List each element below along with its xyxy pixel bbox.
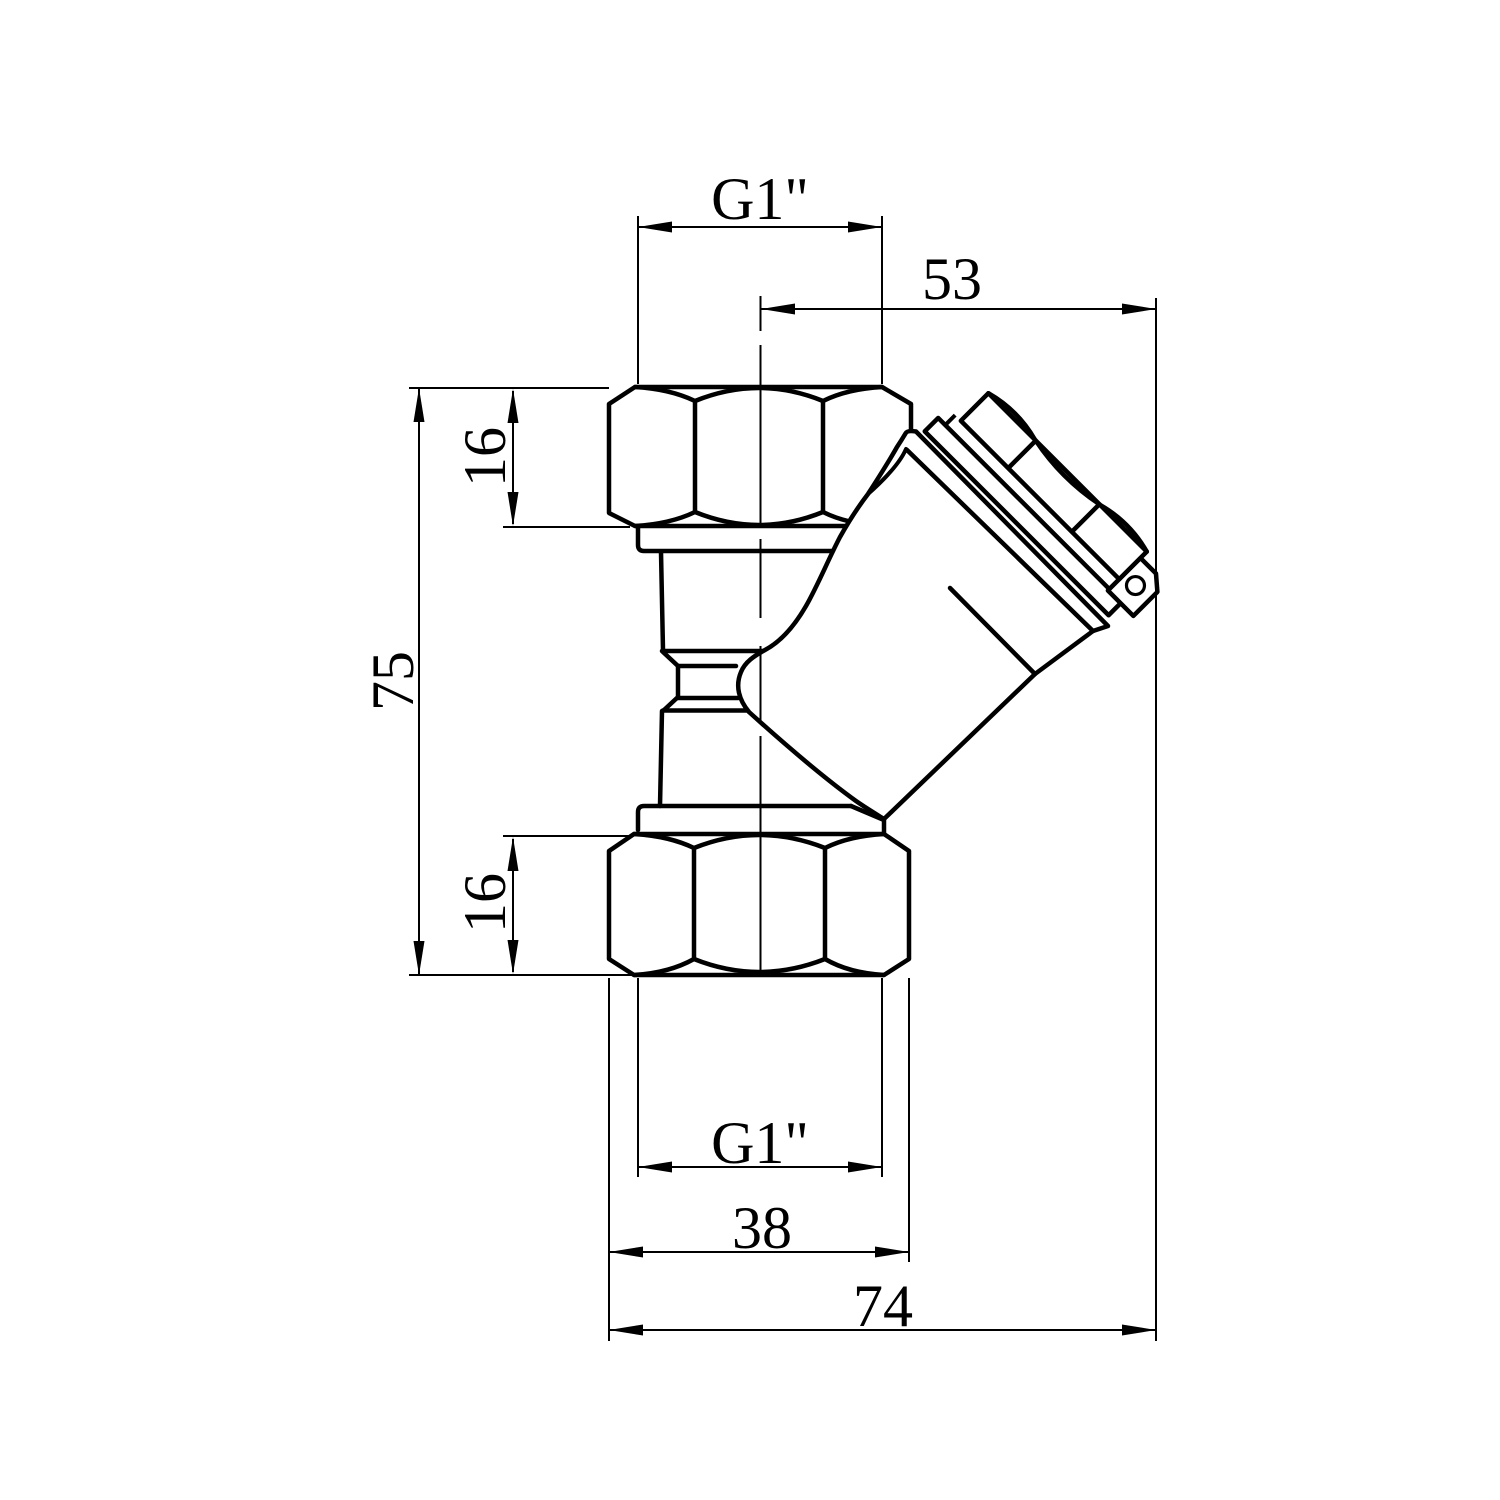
svg-text:74: 74 bbox=[853, 1273, 913, 1339]
svg-text:16: 16 bbox=[452, 873, 518, 933]
svg-text:38: 38 bbox=[732, 1195, 792, 1261]
svg-text:75: 75 bbox=[360, 651, 426, 711]
svg-text:G1": G1" bbox=[711, 166, 809, 232]
svg-text:53: 53 bbox=[922, 246, 982, 312]
svg-text:G1": G1" bbox=[711, 1110, 809, 1176]
svg-text:16: 16 bbox=[452, 427, 518, 487]
